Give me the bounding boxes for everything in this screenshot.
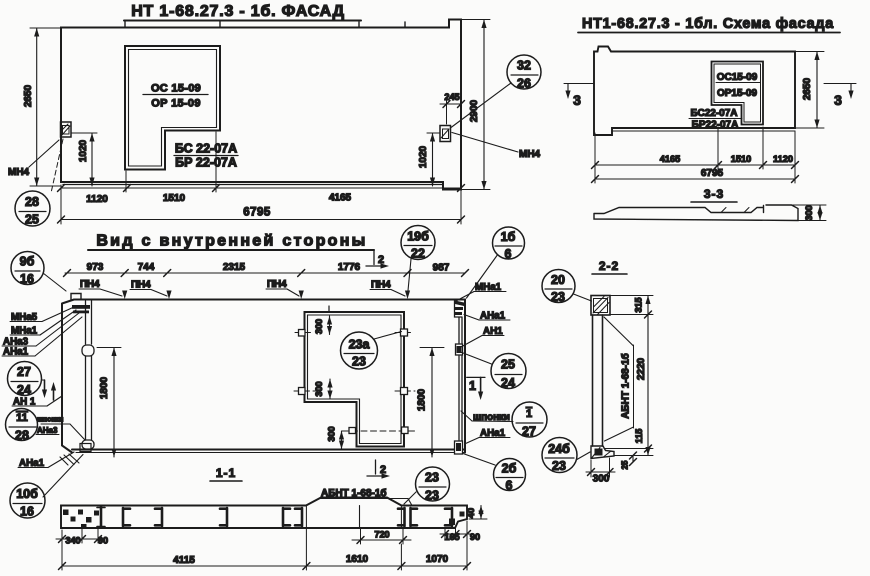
svg-text:6: 6 [505,247,512,261]
svg-text:1: 1 [526,408,532,420]
svg-text:АНа3: АНа3 [37,426,58,435]
svg-text:340: 340 [65,536,80,546]
svg-text:11: 11 [16,412,28,424]
svg-text:1-1: 1-1 [216,466,236,480]
svg-text:1776: 1776 [338,262,361,273]
svg-text:22: 22 [411,247,425,261]
svg-text:16: 16 [20,272,34,286]
svg-text:1б: 1б [501,230,516,244]
svg-text:245: 245 [444,92,459,102]
svg-text:ОС 15-09: ОС 15-09 [151,83,201,95]
svg-text:1070: 1070 [426,554,449,565]
svg-text:3: 3 [834,92,842,108]
svg-text:АБНТ 1-68-1б: АБНТ 1-68-1б [321,487,387,499]
svg-text:23: 23 [551,290,565,304]
svg-text:МН4: МН4 [8,167,30,178]
svg-text:6795: 6795 [243,207,271,219]
svg-text:987: 987 [433,263,450,274]
svg-text:шпонки: шпонки [37,417,63,424]
svg-text:40: 40 [466,508,476,518]
svg-text:БР 22-07А: БР 22-07А [175,156,237,170]
svg-text:90: 90 [98,536,108,546]
svg-text:3: 3 [573,92,581,108]
svg-text:315: 315 [634,297,644,312]
svg-text:1610: 1610 [346,554,369,565]
svg-text:ОР15-09: ОР15-09 [717,88,757,99]
svg-text:МН4: МН4 [519,149,541,160]
svg-text:2б: 2б [502,462,517,476]
svg-text:ПН4: ПН4 [131,280,151,291]
svg-text:23: 23 [352,355,366,369]
svg-text:24: 24 [17,383,31,397]
svg-text:НТ1-68.27.3 - 1бл. Схема фасад: НТ1-68.27.3 - 1бл. Схема фасада [582,16,834,32]
svg-text:1020: 1020 [78,139,89,162]
svg-text:300: 300 [314,319,324,334]
svg-text:ПН4: ПН4 [267,279,287,290]
svg-text:23а: 23а [349,338,371,352]
svg-text:23: 23 [425,471,439,485]
svg-text:24б: 24б [548,442,570,456]
svg-text:БС 22-07А: БС 22-07А [175,142,237,156]
svg-text:1800: 1800 [99,376,110,399]
svg-text:720: 720 [374,530,389,540]
svg-text:300: 300 [327,426,337,441]
svg-text:90: 90 [470,532,480,542]
svg-text:23: 23 [552,459,566,473]
svg-text:4115: 4115 [173,555,195,566]
svg-text:3-3: 3-3 [704,187,724,201]
svg-text:300: 300 [593,474,610,485]
svg-text:1510: 1510 [731,154,751,164]
svg-text:28: 28 [15,429,29,443]
svg-text:1510: 1510 [163,193,186,204]
svg-text:1020: 1020 [418,145,429,168]
svg-text:4165: 4165 [329,193,352,204]
svg-text:6: 6 [506,479,513,493]
svg-text:БР22-07А: БР22-07А [692,120,739,131]
svg-text:744: 744 [138,262,155,273]
svg-text:25: 25 [25,213,39,227]
svg-text:9б: 9б [20,255,35,269]
svg-text:БС22-07А: БС22-07А [690,108,737,119]
svg-text:16: 16 [20,505,34,519]
svg-text:25: 25 [501,358,515,372]
svg-text:ПН4: ПН4 [371,280,391,291]
svg-text:19б: 19б [407,230,429,244]
svg-text:ПН4: ПН4 [80,279,100,290]
svg-text:25: 25 [621,460,630,469]
svg-text:ОС15-09: ОС15-09 [717,72,758,83]
svg-text:ОР 15-09: ОР 15-09 [151,98,200,110]
svg-text:2: 2 [378,254,384,266]
svg-text:10б: 10б [16,487,38,501]
svg-text:28: 28 [25,195,39,209]
svg-text:27: 27 [17,365,31,379]
svg-text:2650: 2650 [802,77,813,100]
svg-text:32: 32 [517,59,531,73]
svg-text:2650: 2650 [23,84,34,107]
svg-text:115: 115 [634,429,644,444]
svg-text:165: 165 [444,532,459,542]
svg-text:4165: 4165 [660,154,680,164]
svg-text:2220: 2220 [636,357,647,380]
svg-text:300: 300 [314,381,324,396]
svg-text:1120: 1120 [86,194,108,205]
svg-text:26: 26 [517,77,531,91]
svg-text:НТ 1-68.27.3 - 1б. ФАСАД: НТ 1-68.27.3 - 1б. ФАСАД [131,3,345,20]
svg-text:23: 23 [425,489,439,503]
svg-text:20: 20 [551,273,565,287]
svg-text:6795: 6795 [701,168,724,179]
svg-text:300: 300 [804,205,814,220]
svg-text:АБНТ 1-68-1б: АБНТ 1-68-1б [620,353,632,419]
svg-text:2900: 2900 [469,99,480,122]
svg-text:27: 27 [522,425,536,439]
svg-text:973: 973 [87,262,104,273]
svg-text:Вид с внутренней стороны: Вид с внутренней стороны [96,233,367,250]
svg-text:1800: 1800 [417,388,428,411]
svg-text:24: 24 [501,376,515,390]
svg-text:2315: 2315 [223,262,246,273]
svg-text:2-2: 2-2 [599,259,619,273]
svg-text:1120: 1120 [773,154,793,164]
svg-text:2: 2 [380,464,386,476]
svg-text:1: 1 [469,379,476,393]
